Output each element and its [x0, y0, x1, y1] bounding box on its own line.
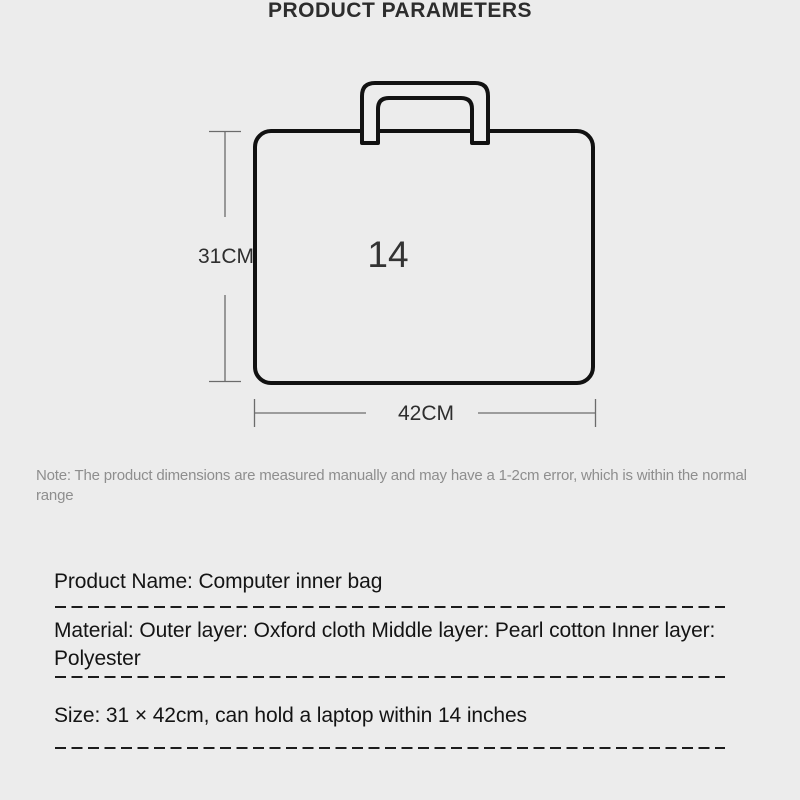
dashed-divider [55, 676, 725, 678]
dashed-divider [55, 747, 725, 749]
bag-dimension-diagram: 14 31CM 42CM [0, 0, 800, 460]
bag-inch-label: 14 [367, 234, 408, 275]
product-name-row: Product Name: Computer inner bag [54, 568, 730, 596]
width-dimension-label: 42CM [398, 402, 454, 425]
product-parameters-panel: PRODUCT PARAMETERS 14 31CM 42CM Note: Th… [0, 0, 800, 800]
measurement-note: Note: The product dimensions are measure… [36, 466, 776, 506]
height-dimension-label: 31CM [198, 245, 254, 268]
dashed-divider [55, 606, 725, 608]
bag-body-outline [255, 131, 593, 383]
material-row: Material: Outer layer: Oxford cloth Midd… [54, 617, 730, 673]
size-row: Size: 31 × 42cm, can hold a laptop withi… [54, 702, 730, 730]
